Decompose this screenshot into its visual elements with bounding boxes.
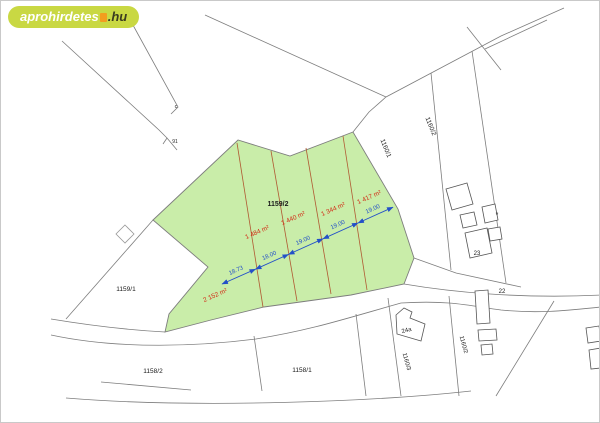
parcel-label: 1160/1: [379, 138, 393, 159]
parcel-label: 23: [474, 251, 481, 257]
parcel-label: 91: [172, 139, 178, 145]
parcel-label: 1160/2: [458, 335, 469, 354]
parcel-label: 1159/1: [116, 286, 136, 293]
parcel-label: 1158/1: [292, 367, 312, 374]
buildings: [396, 183, 600, 369]
parcel-label: 1158/2: [143, 368, 163, 375]
cadastral-map-screenshot: 18.7318.0019.0019.0019.00 1159/21159/111…: [0, 0, 600, 423]
diamond-marker: [116, 225, 134, 243]
parcel-label: *: [496, 212, 499, 219]
highlighted-plot-polygon: [153, 132, 414, 332]
parcel-label: c: [175, 104, 178, 110]
parcel-label: 22: [499, 289, 506, 295]
watermark-tld-text: .hu: [108, 6, 128, 28]
watermark-badge: aprohirdetes.hu: [8, 6, 139, 28]
watermark-accent-block: [100, 13, 107, 22]
cadastral-map: 18.7318.0019.0019.0019.00 1159/21159/111…: [1, 1, 600, 423]
parcel-label: 1160/3: [401, 352, 412, 371]
watermark-brand-text: aprohirdetes: [20, 6, 99, 28]
parcel-label: 1159/2: [267, 201, 288, 208]
